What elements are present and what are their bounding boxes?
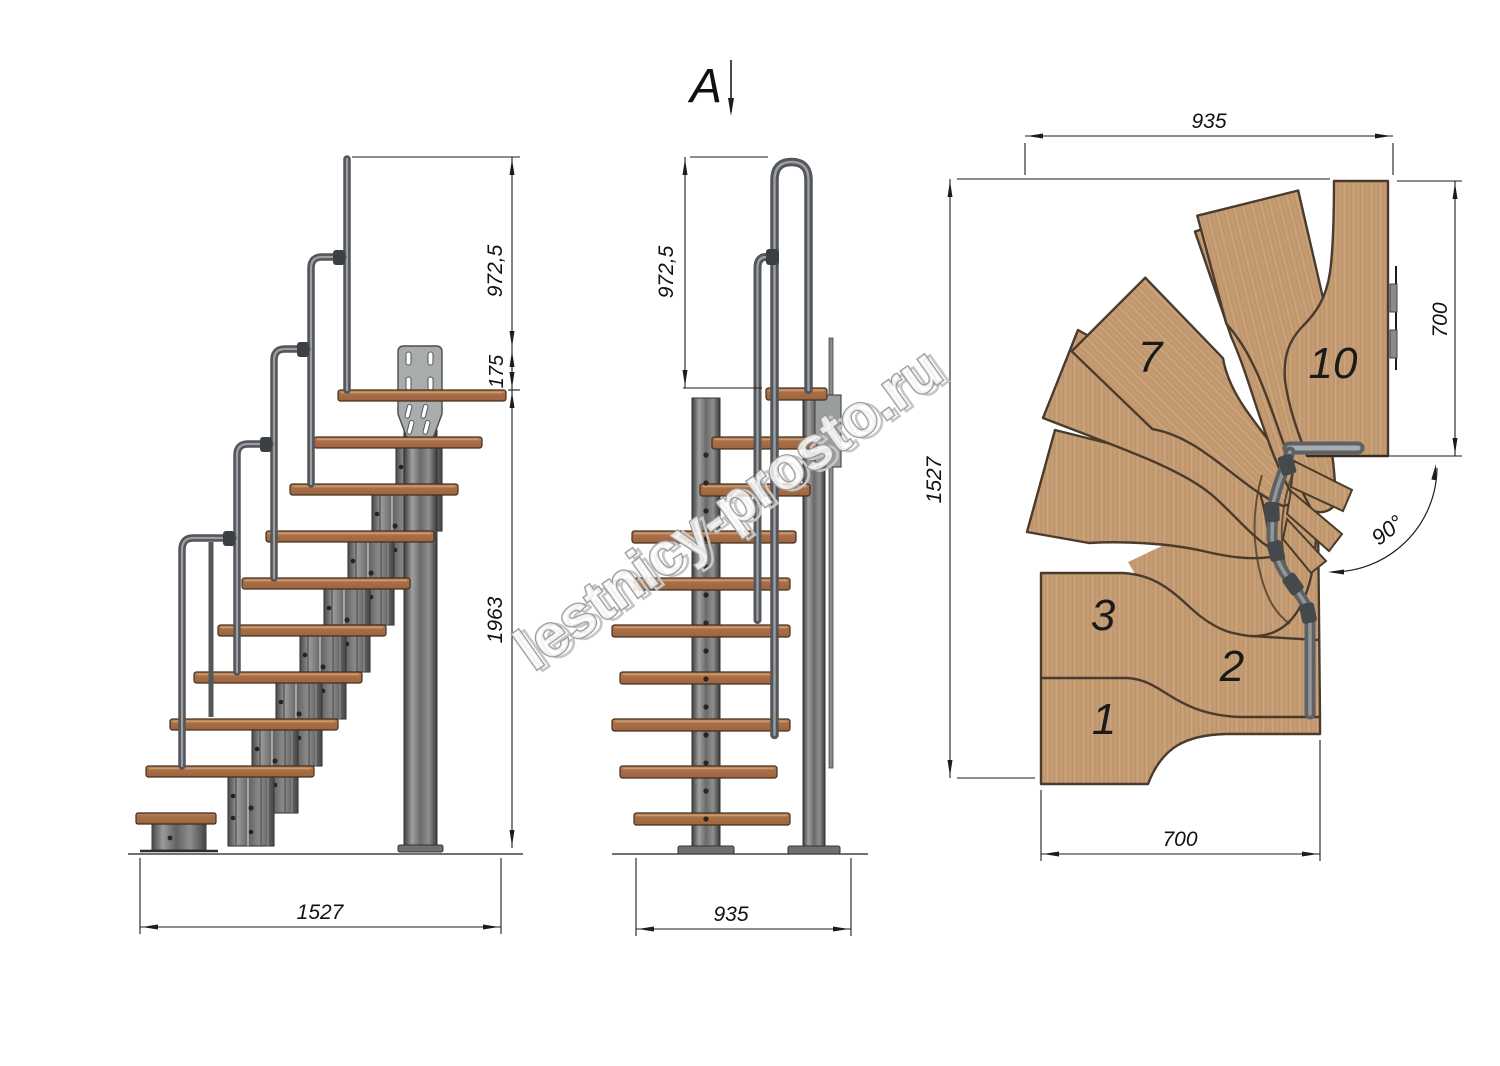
svg-text:972,5: 972,5	[484, 244, 507, 297]
svg-text:10: 10	[1309, 339, 1358, 388]
svg-text:700: 700	[1162, 828, 1197, 851]
svg-text:935: 935	[713, 903, 748, 926]
svg-text:1527: 1527	[923, 455, 946, 503]
svg-text:972,5: 972,5	[655, 245, 678, 298]
svg-text:175: 175	[486, 354, 508, 388]
svg-text:1: 1	[1092, 695, 1116, 744]
svg-text:7: 7	[1138, 333, 1164, 382]
svg-text:1527: 1527	[297, 901, 345, 924]
svg-text:2: 2	[1219, 642, 1244, 691]
svg-text:3: 3	[1091, 591, 1116, 640]
svg-text:935: 935	[1191, 110, 1226, 133]
svg-text:700: 700	[1429, 302, 1452, 337]
svg-text:A: A	[687, 60, 722, 113]
svg-text:1963: 1963	[484, 596, 507, 643]
